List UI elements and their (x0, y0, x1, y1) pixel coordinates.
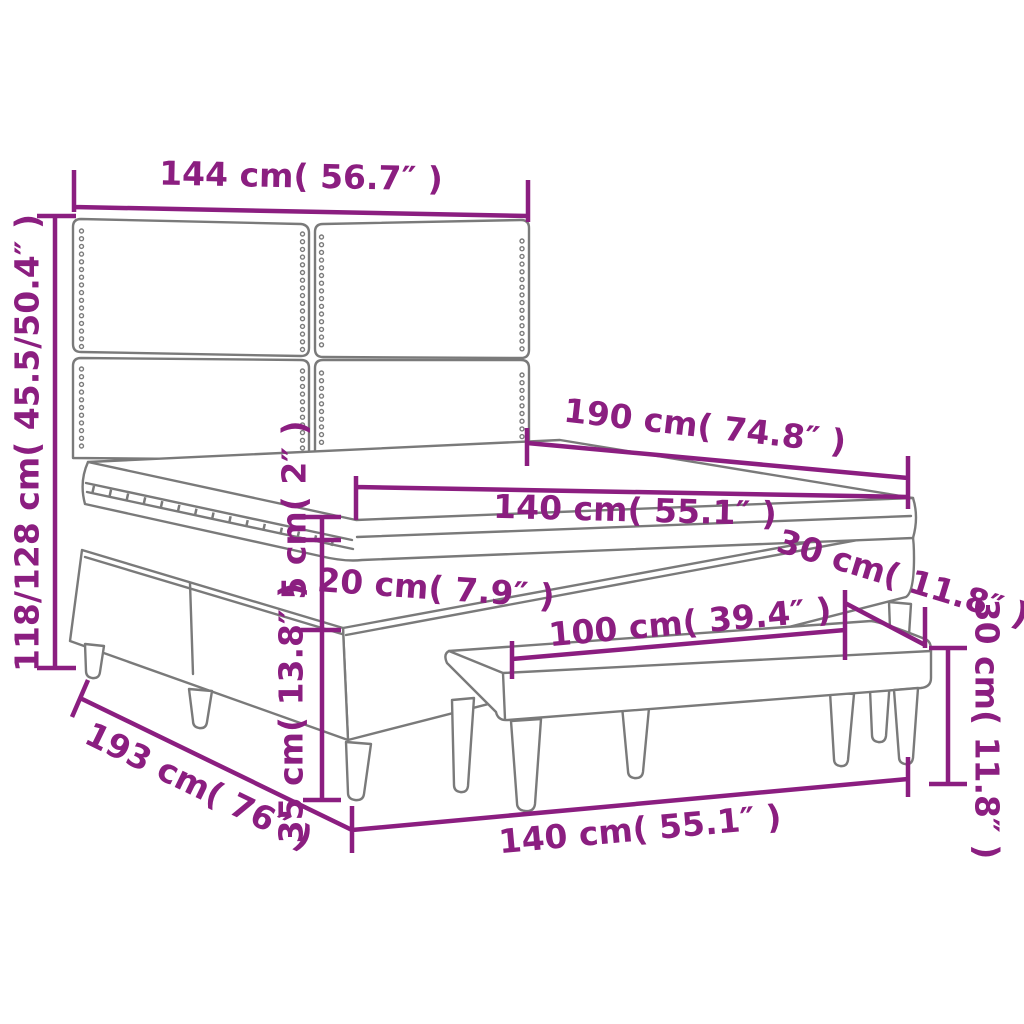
bench-leg-front-right (894, 688, 918, 764)
dim-label-bench-height: 30 cm( 11.8″ ) (968, 599, 1007, 860)
bed-leg (189, 689, 212, 728)
bed-leg (830, 692, 854, 766)
bench-leg-front-left (511, 719, 541, 811)
bed-leg (346, 742, 371, 800)
dim-label-headboard-width: 144 cm( 56.7″ ) (159, 154, 443, 199)
dim-label-total-height: 118/128 cm( 45.5/50.4″ ) (8, 214, 47, 672)
dim-label-topper-height: 5 cm( 2″ ) (275, 420, 314, 599)
bed-dimension-diagram: 144 cm( 56.7″ ) 118/128 cm( 45.5/50.4″ )… (0, 0, 1024, 1024)
dim-label-frame-width: 140 cm( 55.1″ ) (497, 797, 783, 862)
bed-leg (622, 706, 649, 778)
bed-leg (85, 644, 104, 678)
headboard-panel-top-left (73, 219, 309, 356)
bench-leg-back-left (452, 698, 474, 792)
headboard-panel-top-right (315, 220, 529, 358)
dim-line-bench-height (929, 648, 967, 784)
dim-label-mattress-height: 20 cm( 7.9″ ) (316, 560, 556, 615)
dim-label-mattress-width: 140 cm( 55.1″ ) (493, 487, 778, 533)
